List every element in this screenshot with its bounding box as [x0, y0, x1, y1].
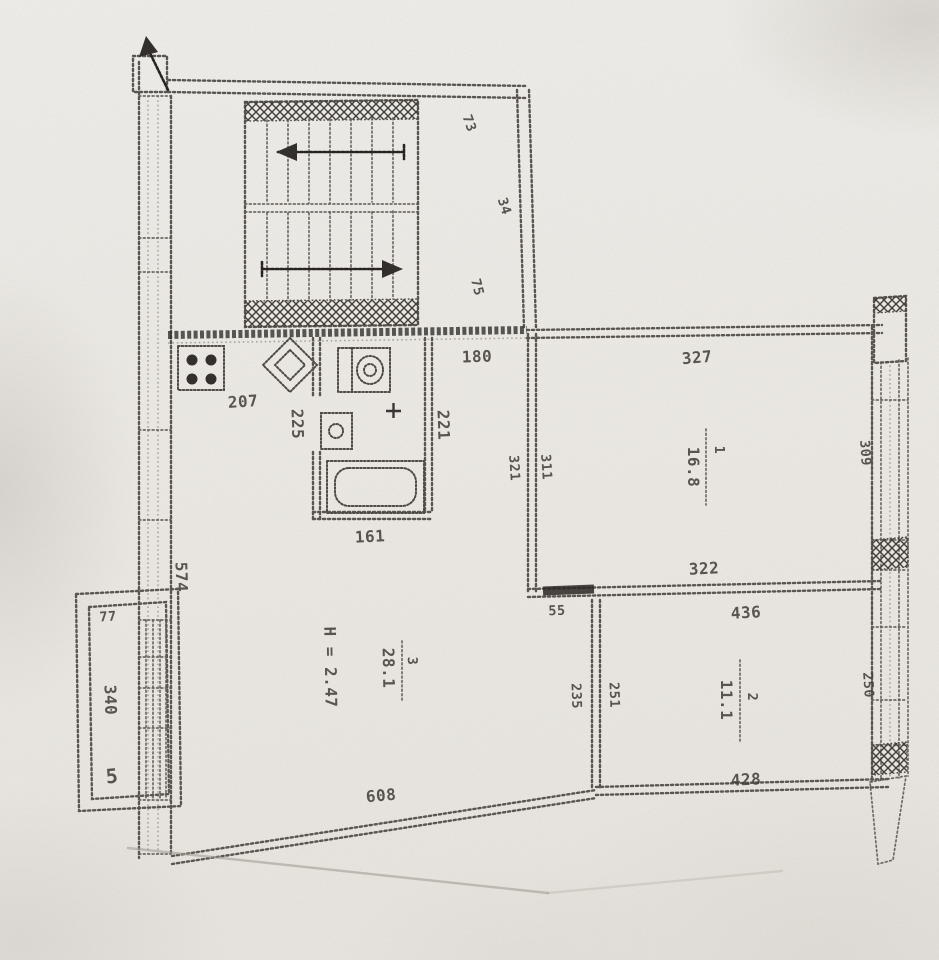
floor-plan-canvas: 73 34 75 207 225 221 161 180 — [0, 0, 939, 960]
scanned-floor-plan-page: 73 34 75 207 225 221 161 180 — [0, 0, 939, 960]
scan-noise-overlay — [0, 0, 939, 960]
scan-artifacts — [0, 0, 939, 960]
